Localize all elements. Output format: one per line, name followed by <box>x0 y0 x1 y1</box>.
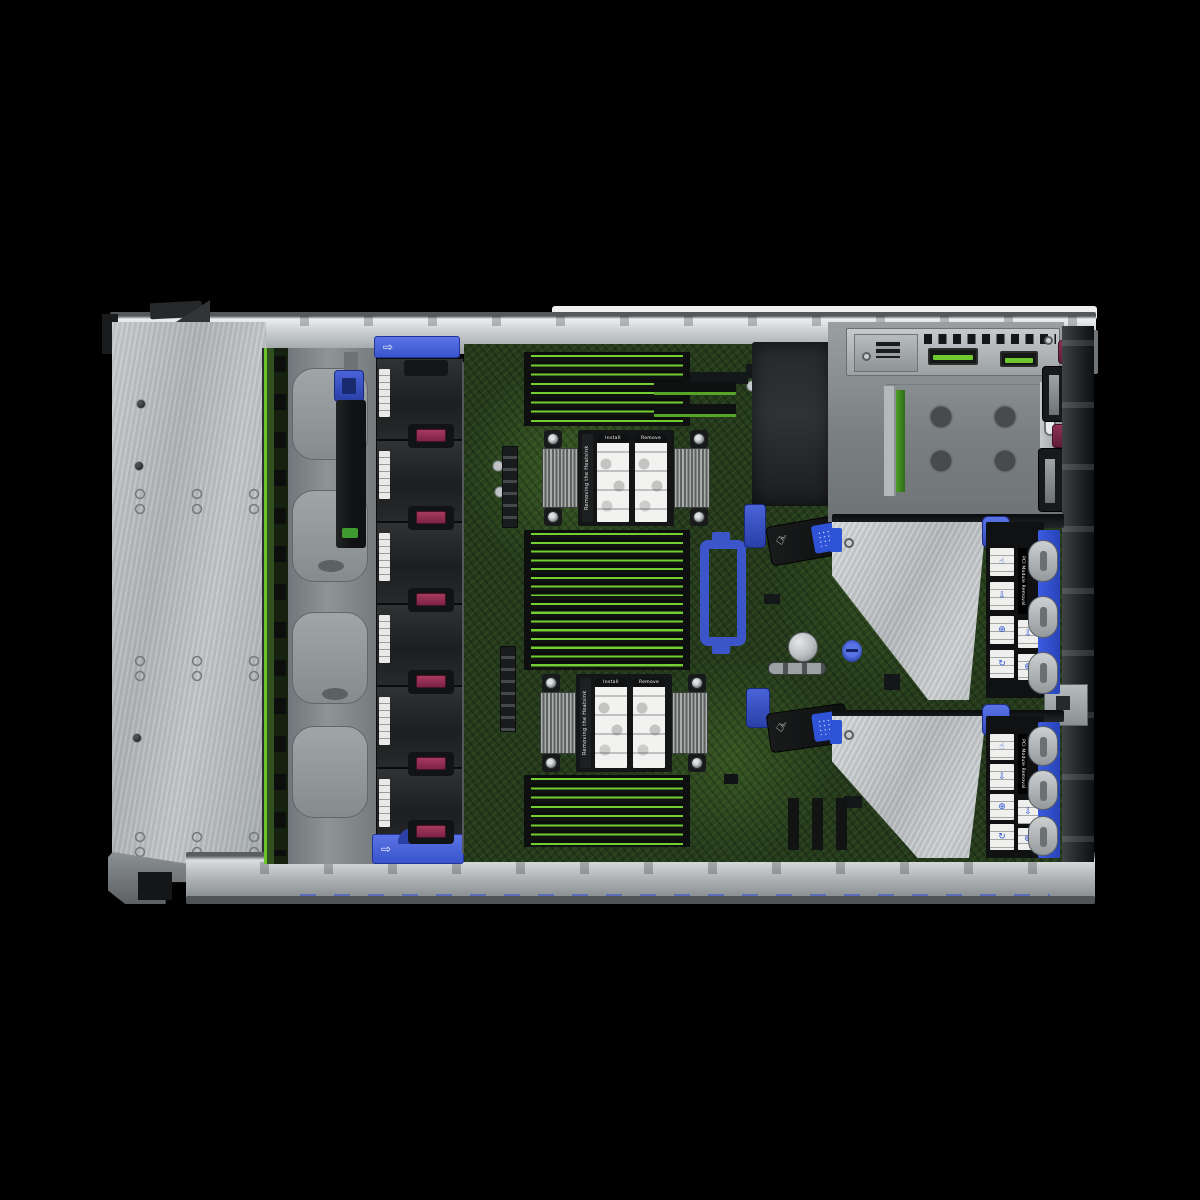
slot-release-latch <box>1028 816 1058 856</box>
fan-latch-grip <box>416 429 446 442</box>
latch-slot <box>1040 737 1047 757</box>
fan-latch-grip <box>416 511 446 524</box>
plate-rivet-2 <box>134 461 144 471</box>
fan-latch-2 <box>408 506 454 530</box>
slot-release-latch <box>1028 726 1058 766</box>
product-photo-server-top-view: ⇨ ⇨ ✻1 ✻2 ✻3 ✻4 ✻5 ✻6 Re <box>0 0 1200 1200</box>
plate-rivet-1 <box>136 399 146 409</box>
latch-slot <box>1040 781 1047 801</box>
cage-screw <box>844 538 854 548</box>
slot-release-latch <box>1028 596 1058 638</box>
strap-cutout-1 <box>318 560 344 572</box>
energy-pack-clip-slot <box>342 378 356 394</box>
heatsink-screw <box>691 757 703 769</box>
fan-latch-grip <box>416 593 446 606</box>
energy-pack-led <box>342 528 358 538</box>
riser-vent-dashes <box>924 334 1056 344</box>
glyph-icon: ☝ <box>999 742 1004 752</box>
slot-edge <box>1005 358 1033 363</box>
fan-part-sticker <box>379 779 390 827</box>
hand-point-icon: ☝ <box>773 531 788 549</box>
capacitor-row <box>768 662 826 675</box>
energy-pack-body <box>336 400 366 548</box>
fan-part-sticker <box>379 697 390 745</box>
slimline-connector-1 <box>654 382 736 395</box>
heatsink-instruction-sticker: Install <box>597 434 629 522</box>
heatsink-screw <box>547 433 559 445</box>
heatsink-screw <box>693 433 705 445</box>
cage-press-touchpoint <box>830 528 842 552</box>
plate-rivet-3 <box>132 733 142 743</box>
riser-strip-label: PCI Module Removal <box>1018 734 1027 794</box>
riser-instruction-sticker: ☝ <box>990 548 1014 576</box>
slimline-connector-2 <box>654 404 736 417</box>
heatsink-screw <box>691 677 703 689</box>
mezz-tab-bottom <box>712 644 730 654</box>
fan-cage-label-top: ⇨ <box>374 336 460 358</box>
riser-instruction-sticker: ↻ <box>990 650 1014 678</box>
psu-bracket <box>1045 459 1055 503</box>
cable-strap-4 <box>292 726 368 818</box>
fan-part-sticker <box>379 369 390 417</box>
heatsink-fins-left <box>542 448 578 508</box>
fan-latch-grip <box>416 675 446 688</box>
riser-slot-green-2 <box>1000 351 1038 367</box>
fan-part-sticker <box>379 533 390 581</box>
fan-part-sticker <box>379 615 390 663</box>
plate-screw-holes-row-2 <box>134 654 260 684</box>
riser-cage-1: ☝ ⇩ ⊕ ↻ PCI Module Removal ⇩ ⊕ <box>832 514 1064 702</box>
slot-release-latch <box>1028 770 1058 810</box>
cpu1-power-connector <box>502 446 518 528</box>
dimm-bank-middle <box>524 530 690 670</box>
right-edge-tabs <box>1062 340 1094 850</box>
riser-instruction-sticker: ⊕ <box>990 616 1014 644</box>
heatsink-fins-right <box>672 692 708 754</box>
sticker-header: Install <box>595 678 627 687</box>
glyph-icon: ☝ <box>999 557 1004 567</box>
psu-bracket <box>1049 375 1059 415</box>
glyph-icon: ↻ <box>998 659 1006 669</box>
dimm-bank-bottom <box>524 775 690 847</box>
tray-left-bracket <box>884 386 896 496</box>
latch-slot <box>1040 663 1047 683</box>
sticker-header: Remove <box>633 678 665 687</box>
slot-release-latch <box>1028 652 1058 694</box>
cpu2-heatsink: Removing the Heatsink Install Remove <box>540 672 708 774</box>
hand-point-icon: ☝ <box>773 718 789 736</box>
cage-screw <box>844 730 854 740</box>
latch-slot <box>1040 827 1047 847</box>
riser-slot-green-1 <box>928 348 978 365</box>
heatsink-fins-right <box>674 448 710 508</box>
heatsink-instruction-sticker: Install <box>595 678 627 768</box>
slot-release-latch <box>1028 540 1058 582</box>
heatsink-title-strip: Removing the Heatsink <box>580 678 591 768</box>
riser-instruction-sticker: ⊕ <box>990 794 1014 820</box>
heatsink-instruction-sticker: Remove <box>633 678 665 768</box>
fan-latch-5 <box>408 752 454 776</box>
heatsink-fins-left <box>540 692 576 754</box>
heatsink-screw <box>545 757 557 769</box>
strap-cutout-2 <box>322 688 348 700</box>
latch-slot <box>1040 607 1047 627</box>
plate-screw-holes-row-1 <box>134 487 260 517</box>
riser-instruction-sticker: ⇩ <box>990 582 1014 610</box>
ocp-empty-bay <box>752 342 830 506</box>
cpu-mezzanine-bracket <box>700 540 746 646</box>
fan-latch-6 <box>408 820 454 844</box>
fan-latch-grip <box>416 757 446 770</box>
arrow-right-icon: ⇨ <box>381 842 391 856</box>
glyph-icon: ⇩ <box>1024 807 1032 817</box>
cmos-battery <box>788 632 818 662</box>
cage-press-touchpoint <box>830 720 842 744</box>
glyph-icon: ⇩ <box>998 772 1006 782</box>
psu-blank-tray <box>886 384 1054 498</box>
riser-strip-label: PCI Module Removal <box>1018 548 1027 614</box>
mezz-tab-top <box>712 532 730 542</box>
riser-bracket-grid <box>876 342 900 358</box>
backplane-connectors <box>274 356 286 856</box>
cpu1-heatsink: Removing the Heatsink Install Remove <box>542 428 710 528</box>
glyph-icon: ⊕ <box>998 802 1006 812</box>
fan-latch-4 <box>408 670 454 694</box>
sticker-header: Install <box>597 434 629 443</box>
riser-instruction-sticker: ☝ <box>990 734 1014 760</box>
riser-cage-2: ☝ ⇩ ⊕ ↻ PCI Module Removal ⇩ ⊕ <box>832 710 1064 862</box>
riser-instruction-sticker: ↻ <box>990 824 1014 850</box>
fan-top-latch <box>404 360 448 376</box>
heatsink-title-strip: Removing the Heatsink <box>582 434 593 522</box>
glyph-icon: ↻ <box>998 832 1006 842</box>
heatsink-screw <box>547 511 559 523</box>
heatsink-screw <box>693 511 705 523</box>
slot-edge <box>933 355 973 360</box>
bottom-edge-lip <box>186 896 1095 904</box>
bracket-screw <box>1044 336 1053 345</box>
fan-latch-3 <box>408 588 454 612</box>
foot-notch <box>138 872 172 900</box>
heatsink-screw <box>545 677 557 689</box>
glyph-icon: ⇩ <box>998 591 1006 601</box>
riser1-board-clip <box>744 504 766 548</box>
fan-part-sticker <box>379 451 390 499</box>
sticker-header: Remove <box>635 434 667 443</box>
cpu2-power-connector <box>500 646 516 732</box>
heatsink-instruction-sticker: Remove <box>635 434 667 522</box>
fan-latch-1 <box>408 424 454 448</box>
fan-latch-grip <box>416 825 446 838</box>
arrow-right-icon: ⇨ <box>383 340 393 354</box>
bracket-screw <box>862 352 871 361</box>
riser-instruction-sticker: ⇩ <box>990 764 1014 790</box>
latch-slot <box>1040 551 1047 571</box>
glyph-icon: ⊕ <box>998 625 1006 635</box>
